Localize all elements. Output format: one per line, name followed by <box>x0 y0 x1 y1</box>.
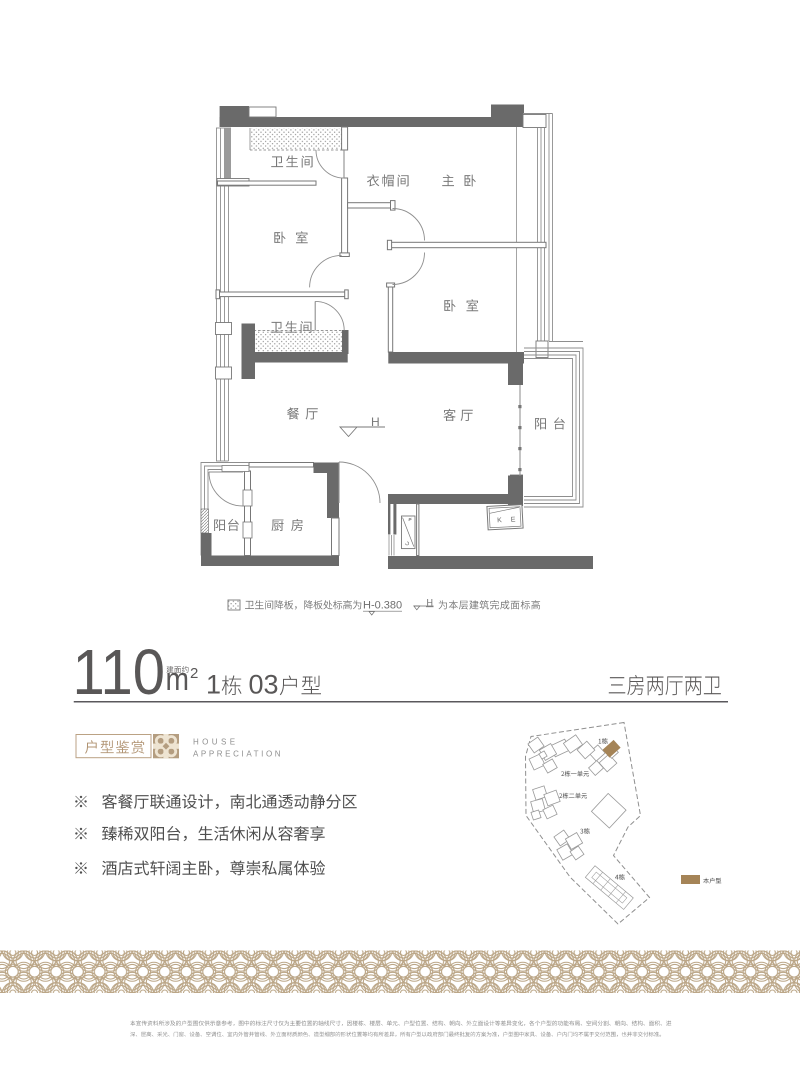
svg-text:H-0.380: H-0.380 <box>363 600 402 612</box>
svg-text:1: 1 <box>206 670 221 700</box>
svg-text:HOUSE: HOUSE <box>193 738 238 747</box>
svg-text:APPRECIATION: APPRECIATION <box>193 750 283 759</box>
svg-text:K E: K E <box>497 516 519 524</box>
svg-text:110: 110 <box>73 636 166 708</box>
svg-text:H: H <box>371 415 380 429</box>
svg-text:2: 2 <box>190 665 198 682</box>
svg-text:03: 03 <box>249 670 279 700</box>
svg-text:H: H <box>427 598 434 608</box>
svg-text:m: m <box>166 661 190 697</box>
